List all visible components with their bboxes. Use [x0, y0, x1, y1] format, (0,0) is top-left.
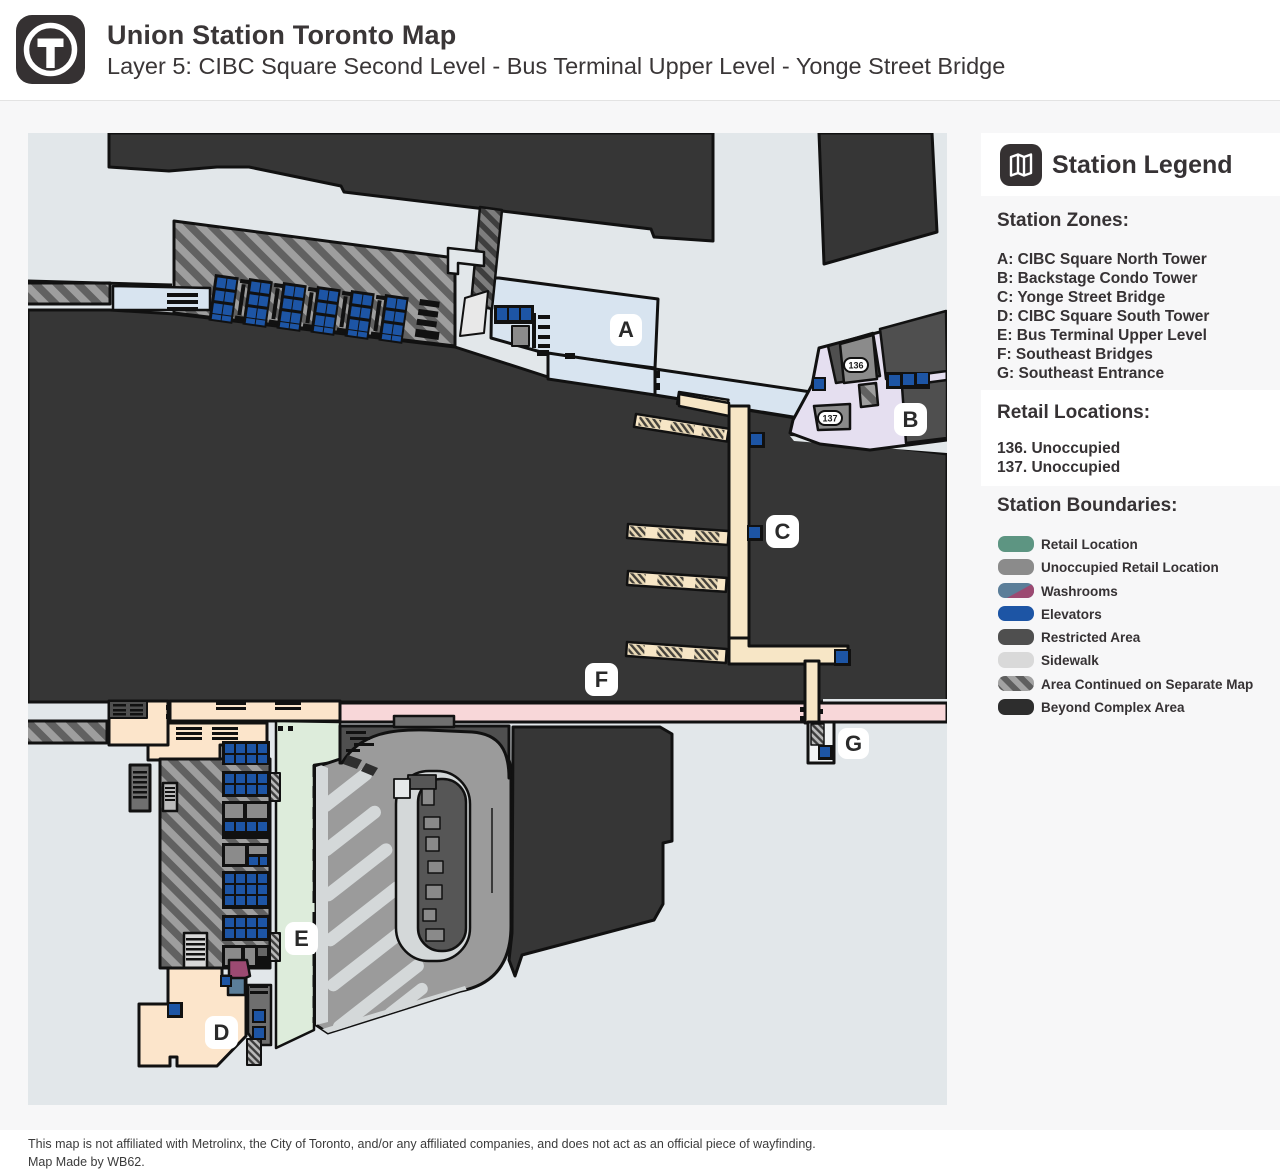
svg-text:G: G [845, 731, 862, 756]
svg-text:136: 136 [848, 361, 863, 371]
svg-text:A: A [618, 317, 634, 342]
svg-text:C: C [775, 519, 791, 544]
svg-text:F: F [595, 667, 608, 692]
svg-text:E: E [294, 926, 309, 951]
svg-text:137: 137 [822, 414, 837, 424]
svg-text:D: D [214, 1020, 230, 1045]
svg-text:B: B [903, 407, 919, 432]
